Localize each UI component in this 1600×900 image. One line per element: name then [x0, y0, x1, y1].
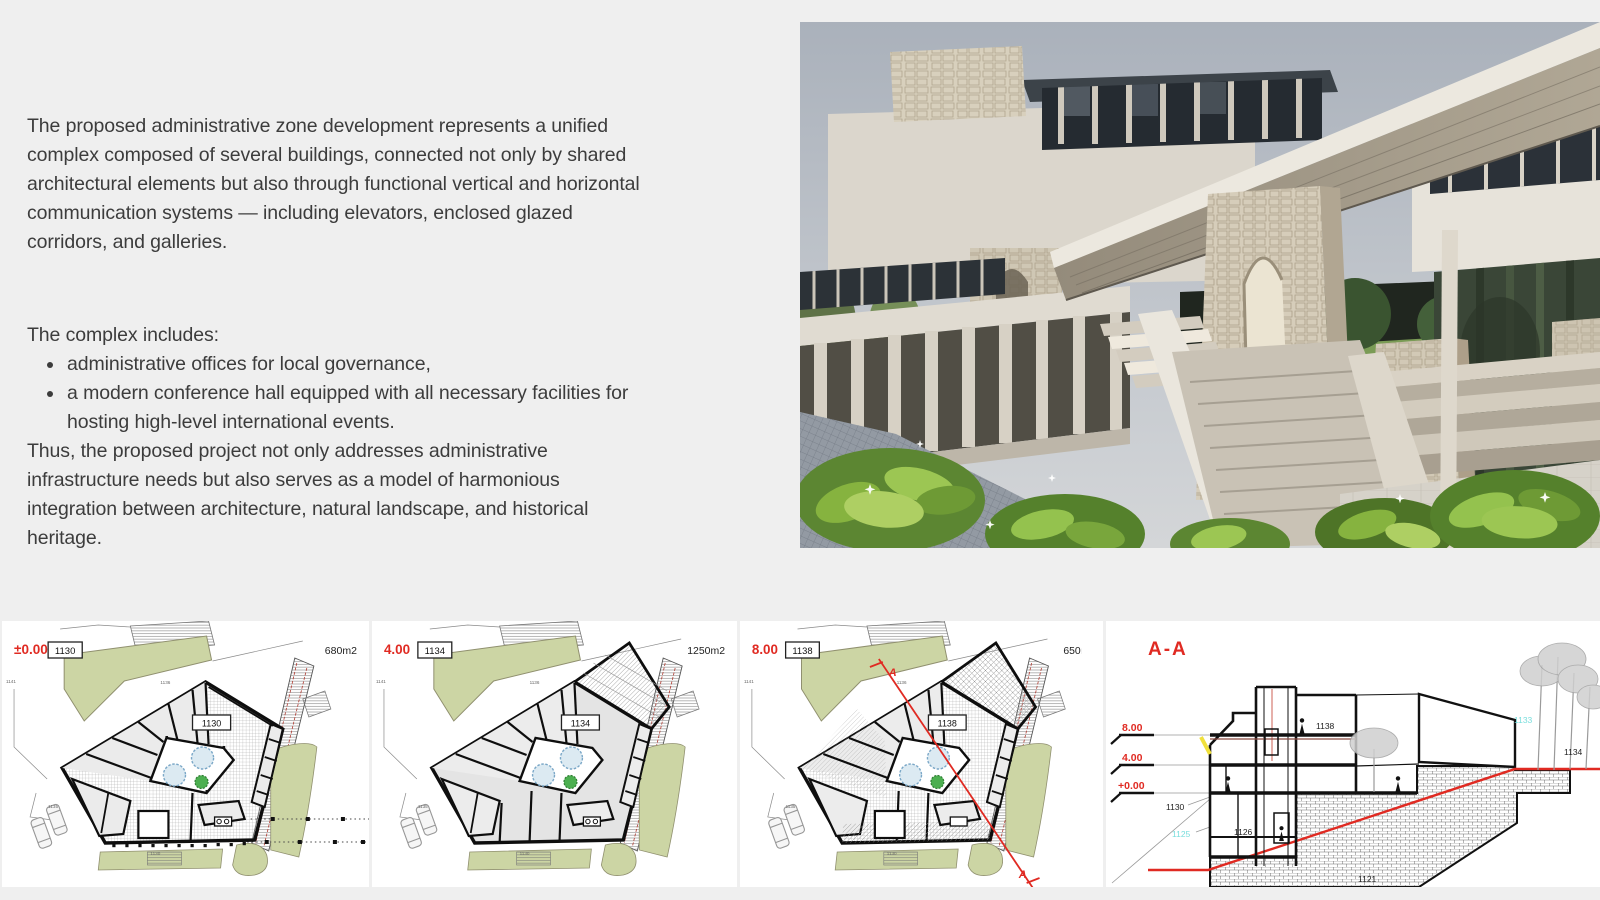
section-marker-top: A	[888, 667, 897, 679]
intro-text-block: The proposed administrative zone develop…	[27, 112, 645, 553]
lawn-right	[271, 744, 317, 857]
lawn-right	[639, 744, 685, 857]
spot-label-1133: 1133	[1514, 715, 1533, 725]
list-item: a modern conference hall equipped with a…	[65, 379, 645, 437]
area-label: 650m2	[1063, 646, 1095, 657]
lawn-right	[1006, 744, 1052, 857]
floor-plan-panel-0: ±0.00 1130 680m2 1130 1141 1136 1135 113…	[2, 621, 369, 887]
spot-label-1126: 1126	[1234, 827, 1253, 837]
floor-plan-panel-2: A A 8.00 1138 650m2 1138 1141 1136 1135 …	[740, 621, 1103, 887]
spot-label-1138: 1138	[1316, 721, 1335, 731]
drawings-strip: ±0.00 1130 680m2 1130 1141 1136 1135 113…	[0, 621, 1600, 887]
svg-text:1136: 1136	[897, 680, 907, 685]
level-label: 4.00	[1122, 752, 1143, 764]
level-tag: 1134	[425, 646, 445, 657]
level-label: 8.00	[1122, 722, 1143, 734]
svg-text:1135: 1135	[418, 804, 428, 809]
svg-text:1141: 1141	[6, 679, 16, 684]
area-label: 1250m2	[687, 646, 725, 657]
floor-plan-2: A A 8.00 1138 650m2 1138 1141 1136 1135 …	[740, 621, 1103, 887]
parked-cars	[28, 803, 71, 849]
section-drawing: A-A	[1106, 621, 1600, 887]
svg-text:1130: 1130	[887, 851, 897, 856]
building-tag: 1138	[938, 718, 957, 728]
room-center-bottom	[138, 811, 168, 838]
area-label: 680m2	[325, 645, 357, 657]
parked-cars	[398, 803, 441, 849]
section-panel: A-A	[1106, 621, 1600, 887]
lawn-round	[601, 843, 636, 875]
room-center-bottom	[875, 811, 905, 838]
spot-label-1125: 1125	[1172, 829, 1191, 839]
architectural-render-image	[800, 22, 1600, 548]
level-flags: 8.00 4.00 +0.00	[1111, 722, 1154, 802]
includes-heading: The complex includes:	[27, 321, 645, 350]
level-tag: 1138	[792, 646, 812, 657]
level-flag-8: 8.00	[1111, 722, 1154, 744]
mid-tree-canopy	[1350, 728, 1398, 758]
bush	[195, 776, 208, 789]
stone-parapet	[890, 46, 1026, 122]
yellow-highlight	[1201, 737, 1210, 754]
level-label: 8.00	[752, 642, 778, 657]
svg-text:1136: 1136	[530, 680, 540, 685]
bush	[931, 776, 944, 789]
floor-plan-panel-1: 4.00 1134 1250m2 1134 1141 1136 1135 113…	[372, 621, 737, 887]
svg-text:1135: 1135	[48, 804, 58, 809]
list-item: administrative offices for local governa…	[65, 350, 645, 379]
intro-paragraph-2: Thus, the proposed project not only addr…	[27, 437, 645, 553]
level-flag-4: 4.00	[1111, 752, 1154, 774]
presentation-slide: The proposed administrative zone develop…	[0, 0, 1600, 900]
svg-text:1135: 1135	[786, 804, 796, 809]
svg-text:1136: 1136	[160, 680, 170, 685]
level-label: +0.00	[1118, 780, 1145, 792]
section-title: A-A	[1148, 639, 1188, 660]
bush	[564, 776, 577, 789]
floor-plan-1: 4.00 1134 1250m2 1134 1141 1136 1135 113…	[372, 621, 737, 887]
lawn-round	[968, 843, 1003, 875]
floor-plan-0: ±0.00 1130 680m2 1130 1141 1136 1135 113…	[2, 621, 369, 887]
level-label: 4.00	[384, 642, 410, 657]
svg-text:1130: 1130	[520, 851, 530, 856]
building-tag: 1130	[202, 719, 221, 729]
level-tag: 1130	[55, 646, 75, 657]
section-marker-bottom: A	[1018, 869, 1027, 881]
building-tag: 1134	[571, 718, 590, 728]
svg-text:1130: 1130	[150, 851, 160, 856]
parked-cars	[765, 803, 807, 849]
hatched-band-bottom	[842, 821, 990, 843]
includes-list: administrative offices for local governa…	[27, 350, 645, 437]
lawn-round	[233, 843, 268, 875]
svg-text:1141: 1141	[376, 679, 386, 684]
elevator-cab	[1265, 729, 1278, 755]
svg-text:1141: 1141	[744, 679, 754, 684]
level-flag-0: +0.00	[1111, 780, 1154, 802]
spot-label-1121: 1121	[1358, 874, 1377, 884]
spot-label-1134: 1134	[1564, 747, 1583, 757]
spot-label-1130: 1130	[1166, 802, 1185, 812]
equipment	[950, 817, 967, 826]
intro-paragraph-1: The proposed administrative zone develop…	[27, 112, 645, 257]
render-illustration	[800, 22, 1600, 548]
level-label: ±0.00	[14, 642, 48, 657]
